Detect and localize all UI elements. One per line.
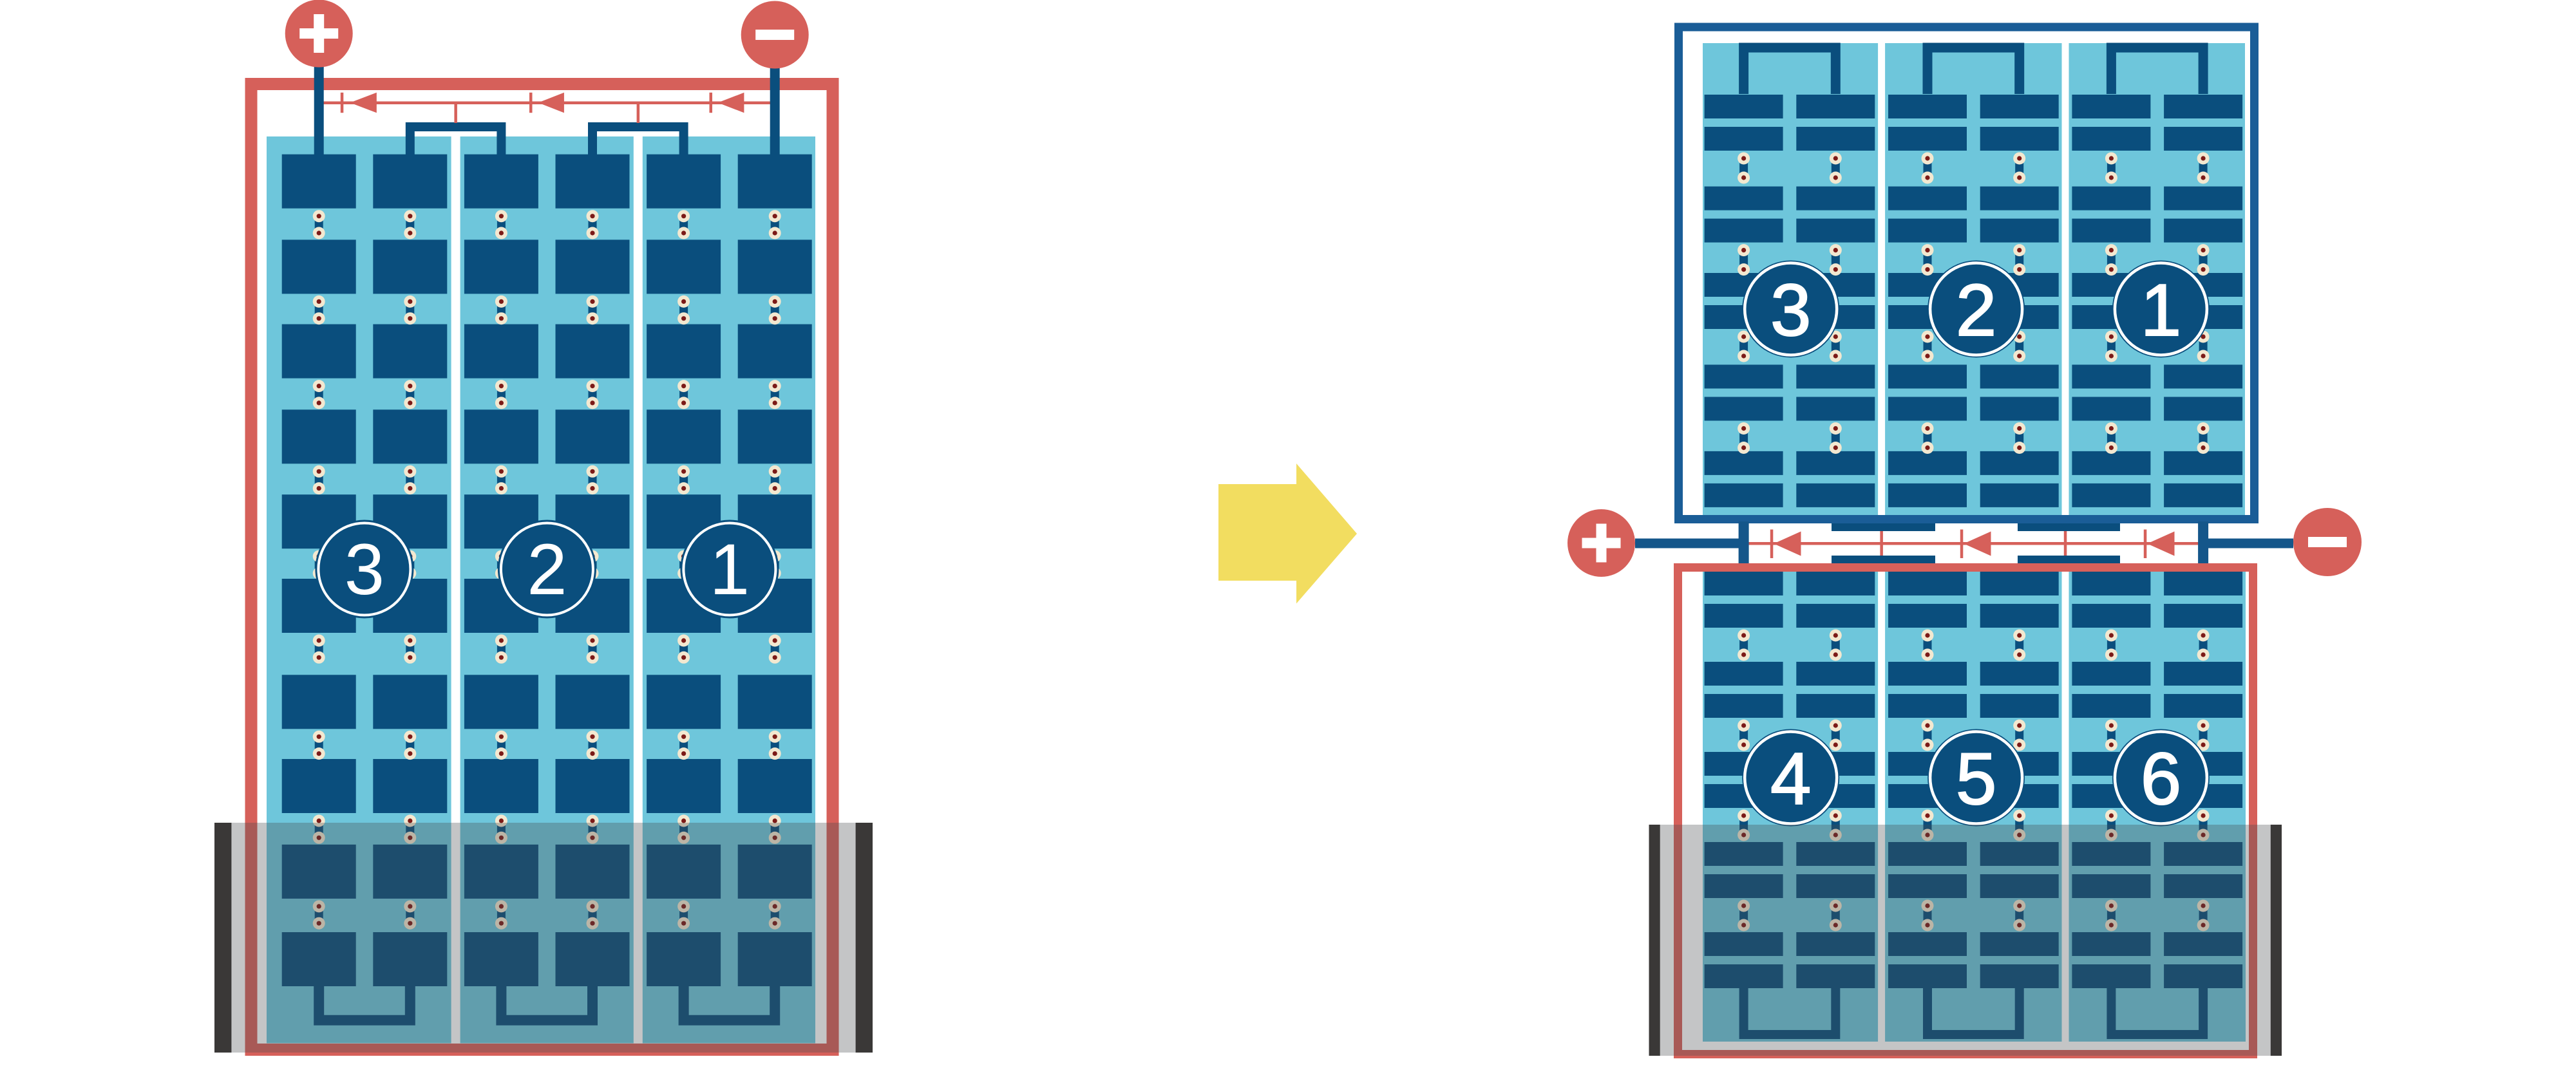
svg-text:2: 2	[1956, 270, 1996, 351]
svg-text:1: 1	[2141, 270, 2181, 351]
svg-text:5: 5	[1956, 738, 1996, 820]
svg-text:4: 4	[1770, 738, 1811, 820]
svg-text:6: 6	[2141, 738, 2181, 820]
svg-text:3: 3	[1770, 270, 1811, 351]
svg-text:1: 1	[710, 529, 750, 610]
svg-text:2: 2	[527, 529, 567, 610]
svg-text:3: 3	[345, 529, 384, 610]
